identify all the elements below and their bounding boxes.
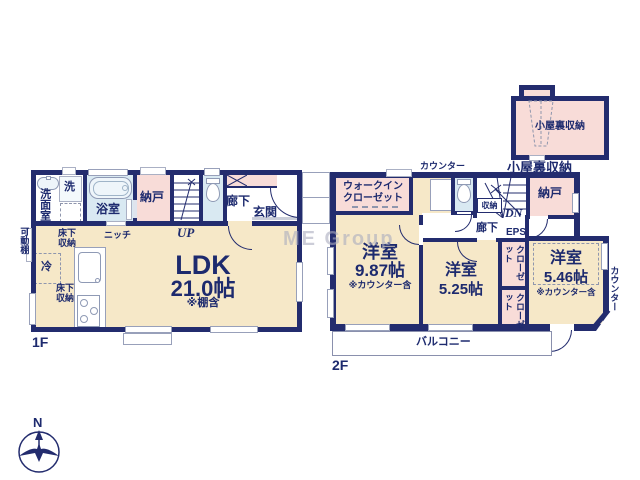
storage-1f-label: 納戸 <box>140 191 164 205</box>
door-gap <box>457 212 471 214</box>
bath-counter <box>126 199 132 220</box>
balcony-door-arc <box>550 330 572 352</box>
compass-north-label: N <box>33 416 42 431</box>
terrace-step <box>123 333 172 345</box>
hallway-1f-label: 廊下 <box>226 195 250 209</box>
floor-plan-page: 洗面室 洗 浴室 納戸 UP 廊下 玄関 LDK 21.0帖 ※棚含 可動棚 床… <box>0 0 640 480</box>
window <box>296 262 303 302</box>
bathtub-icon <box>89 177 132 199</box>
bathroom-label: 浴室 <box>96 203 120 217</box>
counter-desk <box>430 179 452 211</box>
toilet-icon-1f <box>206 183 220 202</box>
wall <box>252 221 302 226</box>
window <box>428 324 473 331</box>
floor1-label: 1F <box>32 334 48 350</box>
fridge-label: 冷 <box>41 261 52 274</box>
window <box>29 293 36 325</box>
watermark: ME Group <box>283 228 395 251</box>
washroom-label: 洗面室 <box>38 188 51 238</box>
wall <box>83 170 87 225</box>
door-tab <box>386 169 412 177</box>
kitchen-faucet-icon <box>95 278 100 283</box>
ldk-note-label: ※棚含 <box>153 297 253 310</box>
wall <box>330 172 580 178</box>
wall <box>199 170 203 225</box>
stove-icon <box>77 295 100 327</box>
door-tab <box>62 167 76 175</box>
toilet-tank-2f <box>457 179 471 185</box>
window <box>88 169 128 176</box>
counter-top-label: カウンター <box>420 161 465 171</box>
bedroom3-note-label: ※カウンター含 <box>527 288 605 298</box>
stairs-1f <box>174 175 200 223</box>
bath-door <box>133 200 137 218</box>
wall <box>548 215 579 219</box>
bedroom2-size-label: 5.25帖 <box>425 281 497 298</box>
storage-2f-label: 納戸 <box>538 187 562 201</box>
wall <box>498 286 527 290</box>
eps-label: EPS <box>506 227 526 239</box>
underfloor-storage-2-label: 床下収納 <box>54 283 76 304</box>
wall <box>526 172 530 219</box>
closet2-label: クローゼット <box>502 293 526 331</box>
balcony-label: バルコニー <box>416 336 471 349</box>
attic-storage-inner-label: 小屋裏収納 <box>516 121 604 133</box>
door-tab <box>140 167 166 175</box>
underfloor-storage-1-label: 床下収納 <box>56 228 78 249</box>
toilet-2f-door-arc <box>455 215 472 232</box>
walk-in-closet-label: ウォークインクローゼット <box>339 181 407 204</box>
floor2-label: 2F <box>332 357 348 373</box>
stairs-down-label: DN <box>505 207 522 221</box>
movable-shelf-label: 可動棚 <box>19 227 29 267</box>
wall <box>525 236 609 241</box>
entrance-label: 玄関 <box>253 206 277 220</box>
shoe-cabinet-x-icon <box>227 175 247 186</box>
window <box>572 193 579 213</box>
wall <box>451 172 455 215</box>
bedroom3-name-label: 洋室 <box>527 250 605 268</box>
closet1-label: クローゼット <box>502 245 526 283</box>
window <box>204 168 220 176</box>
small-closet-label: 収納 <box>477 201 502 210</box>
faucet-icon <box>46 176 51 180</box>
hallway-2f-label: 廊下 <box>476 222 498 235</box>
porch <box>302 172 330 224</box>
compass: N <box>12 418 66 476</box>
toilet-tank-1f <box>206 178 220 184</box>
window <box>327 247 334 275</box>
stairs-up-label: UP <box>177 226 194 241</box>
window <box>125 326 172 333</box>
bedroom2-name-label: 洋室 <box>425 262 497 280</box>
wall <box>409 172 413 215</box>
bedroom1-note-label: ※カウンター含 <box>340 280 420 290</box>
wall <box>170 170 174 225</box>
bedroom3-size-label: 5.46帖 <box>527 269 605 286</box>
bedroom1-size-label: 9.87帖 <box>340 261 420 281</box>
counter-right-label: カウンター <box>609 266 619 318</box>
niche-recess <box>106 221 126 226</box>
toilet-icon-2f <box>457 184 471 203</box>
wic-hanger-rail <box>352 206 398 208</box>
wall <box>332 211 413 215</box>
window <box>210 326 258 333</box>
window <box>345 324 390 331</box>
window <box>327 289 334 318</box>
niche-label: ニッチ <box>104 230 131 240</box>
washer-label: 洗 <box>64 181 75 194</box>
underfloor-hatch-1 <box>60 203 81 222</box>
